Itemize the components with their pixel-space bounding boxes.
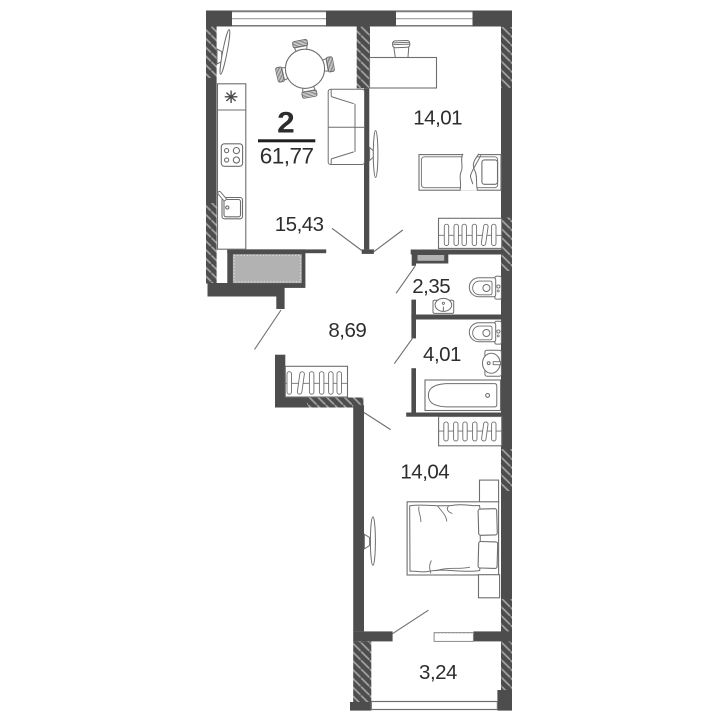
- svg-text:14,01: 14,01: [413, 106, 462, 129]
- svg-text:14,04: 14,04: [400, 461, 449, 484]
- svg-text:61,77: 61,77: [260, 143, 314, 168]
- svg-text:2: 2: [277, 106, 295, 139]
- svg-text:8,69: 8,69: [328, 319, 366, 342]
- svg-text:3,24: 3,24: [419, 661, 457, 684]
- svg-text:2,35: 2,35: [412, 275, 450, 298]
- svg-text:4,01: 4,01: [423, 343, 461, 366]
- svg-text:15,43: 15,43: [275, 213, 324, 236]
